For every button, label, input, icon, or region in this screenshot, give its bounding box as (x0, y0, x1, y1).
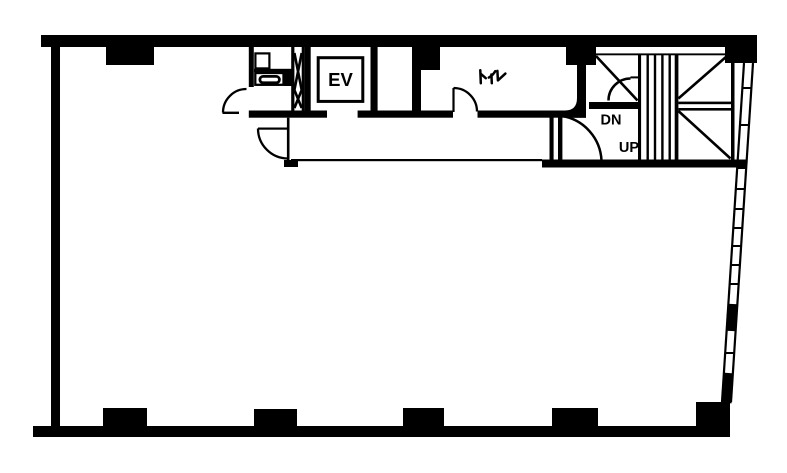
svg-text:UP: UP (619, 140, 639, 156)
svg-text:DN: DN (601, 113, 622, 129)
svg-text:EV: EV (328, 69, 353, 90)
